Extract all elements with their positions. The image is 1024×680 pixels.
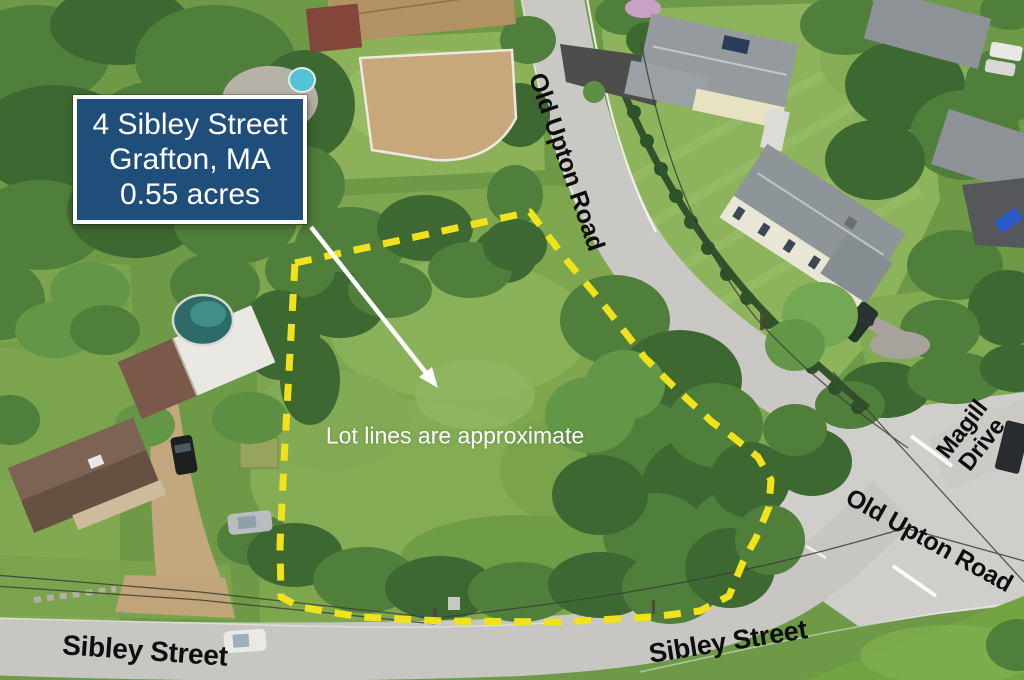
utility-box <box>448 597 460 610</box>
white-car-sibley <box>223 628 266 653</box>
aerial-lot-photo: Old Upton Road Magill Drive Old Upton Ro… <box>0 0 1024 680</box>
utility-pole <box>760 312 764 330</box>
listing-info-box: 4 Sibley Street Grafton, MA 0.55 acres <box>73 95 307 224</box>
backyard-pool <box>289 68 315 92</box>
listing-address-line1: 4 Sibley Street <box>92 107 287 142</box>
listing-address-line2: Grafton, MA <box>109 142 271 177</box>
lot-lines-disclaimer: Lot lines are approximate <box>326 423 584 450</box>
listing-lot-size: 0.55 acres <box>120 177 260 212</box>
